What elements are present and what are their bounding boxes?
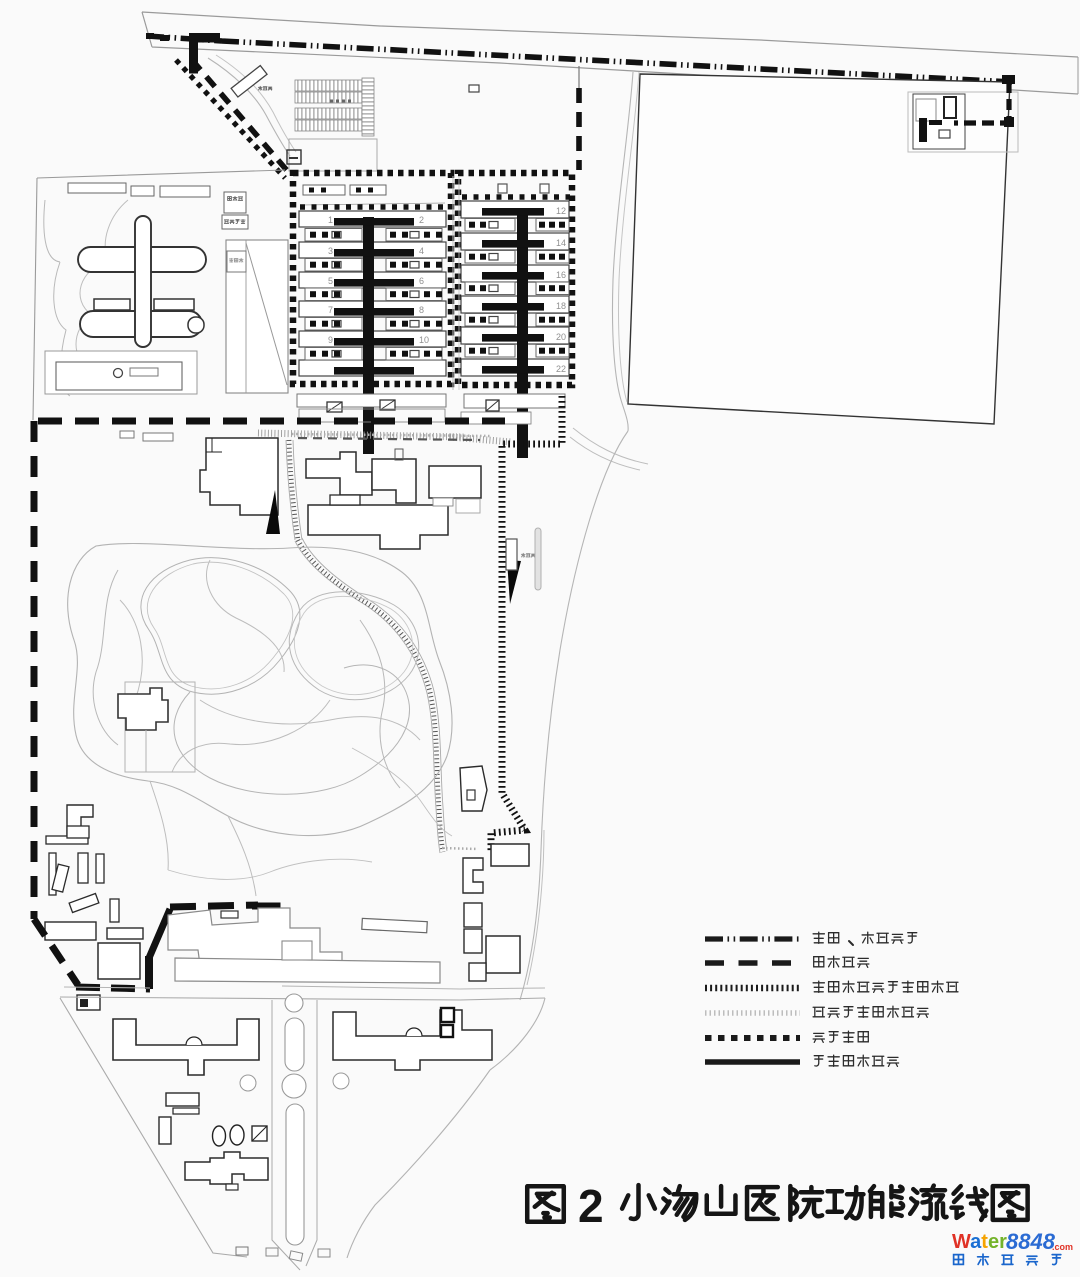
svg-text:6: 6 bbox=[419, 276, 424, 286]
svg-text:8: 8 bbox=[419, 305, 424, 315]
svg-text:16: 16 bbox=[556, 270, 566, 280]
svg-text:20: 20 bbox=[556, 332, 566, 342]
svg-text:9: 9 bbox=[328, 335, 333, 345]
svg-text:8848: 8848 bbox=[1006, 1229, 1056, 1254]
svg-text:2: 2 bbox=[419, 215, 424, 225]
svg-text:5: 5 bbox=[328, 276, 333, 286]
svg-text:22: 22 bbox=[556, 364, 566, 374]
svg-text:1: 1 bbox=[328, 215, 333, 225]
svg-text:7: 7 bbox=[328, 305, 333, 315]
svg-text:12: 12 bbox=[556, 206, 566, 216]
svg-text:Water: Water bbox=[952, 1231, 1007, 1253]
svg-text:10: 10 bbox=[419, 335, 429, 345]
svg-text:.com: .com bbox=[1052, 1242, 1073, 1252]
svg-text:18: 18 bbox=[556, 301, 566, 311]
svg-text:14: 14 bbox=[556, 238, 566, 248]
svg-text:2: 2 bbox=[578, 1180, 604, 1232]
svg-text:3: 3 bbox=[328, 246, 333, 256]
svg-text:4: 4 bbox=[419, 246, 424, 256]
